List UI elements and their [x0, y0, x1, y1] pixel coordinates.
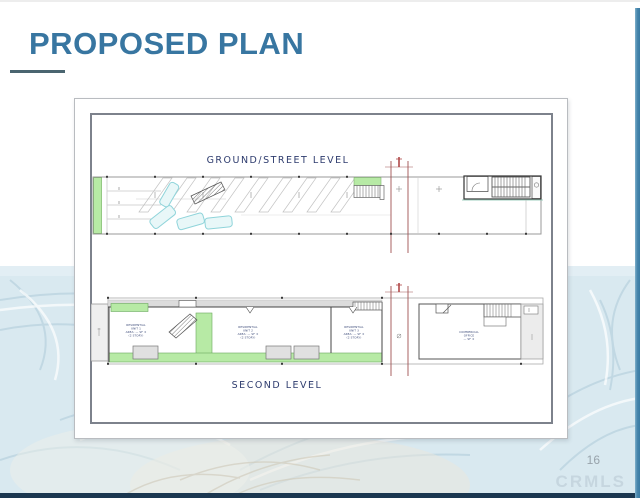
floor-plan-drawing: GROUND/STREET LEVEL: [91, 114, 551, 422]
floor-plan-card: GROUND/STREET LEVEL: [74, 98, 568, 439]
title-underline: [10, 70, 65, 73]
slide: PROPOSED PLAN GROUND/STREET LEVEL: [0, 0, 640, 498]
second-right-strip: [521, 304, 543, 359]
svg-text:— SF ±: — SF ±: [464, 337, 475, 341]
page-number: 16: [587, 453, 600, 467]
svg-text:(2 STORY): (2 STORY): [129, 334, 144, 338]
commercial-office-room: COMMERCIAL OFFICE — SF ±: [419, 304, 521, 359]
second-level-plan: RESIDENTIAL UNIT 1 AREA: — SF ± (2 STORY…: [91, 283, 543, 391]
ground-level-plan: GROUND/STREET LEVEL: [93, 155, 543, 253]
second-level-label: SECOND LEVEL: [232, 380, 323, 391]
ground-green-strip: [94, 178, 102, 234]
bottom-accent-bar: [0, 493, 640, 498]
ground-level-label: GROUND/STREET LEVEL: [207, 155, 350, 166]
svg-text:(2 STORY): (2 STORY): [347, 336, 362, 340]
slide-title: PROPOSED PLAN: [29, 26, 304, 62]
right-accent-strip: [635, 8, 640, 498]
svg-text:(2 STORY): (2 STORY): [241, 336, 256, 340]
second-left-label-box: [91, 304, 108, 361]
crmls-watermark: CRMLS: [556, 472, 626, 492]
ground-mid-staircase: [354, 178, 384, 200]
top-hairline: [0, 0, 640, 2]
